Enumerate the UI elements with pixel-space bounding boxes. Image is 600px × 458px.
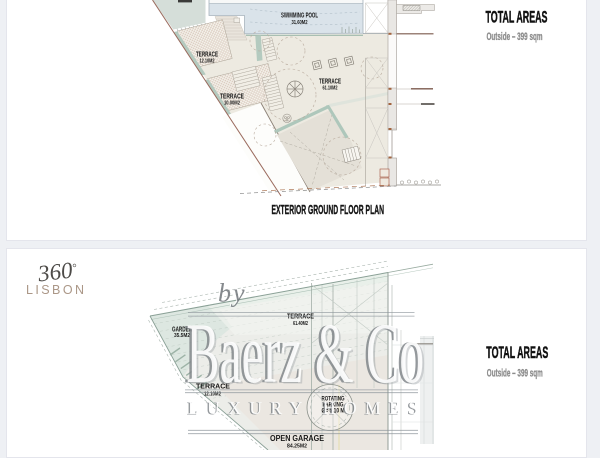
svg-text:84.25M2: 84.25M2: [287, 444, 307, 450]
svg-text:OPEN GARAGE: OPEN GARAGE: [270, 434, 325, 443]
svg-text:LISBON: LISBON: [26, 283, 84, 297]
svg-text:10.00M2: 10.00M2: [224, 101, 240, 107]
svg-text:by: by: [218, 278, 247, 307]
svg-text:Baerz & Co: Baerz & Co: [186, 305, 424, 401]
svg-text:Outside – 399 sqm: Outside – 399 sqm: [487, 31, 543, 43]
svg-text:SWIMMING POOL: SWIMMING POOL: [281, 13, 318, 20]
svg-text:Outside – 399 sqm: Outside – 399 sqm: [487, 368, 543, 380]
svg-text:TOTAL AREAS: TOTAL AREAS: [486, 7, 548, 26]
svg-text:12.10M2: 12.10M2: [200, 59, 215, 65]
svg-text:31.60M2: 31.60M2: [292, 20, 308, 26]
svg-text:TOTAL AREAS: TOTAL AREAS: [486, 343, 548, 362]
svg-text:TERRACE: TERRACE: [319, 79, 341, 86]
svg-text:TERRACE: TERRACE: [196, 52, 218, 59]
svg-text:EXTERIOR GROUND FLOOR PLAN: EXTERIOR GROUND FLOOR PLAN: [272, 202, 385, 217]
svg-text:61.10M2: 61.10M2: [323, 86, 338, 92]
svg-text:TERRACE: TERRACE: [220, 94, 244, 101]
